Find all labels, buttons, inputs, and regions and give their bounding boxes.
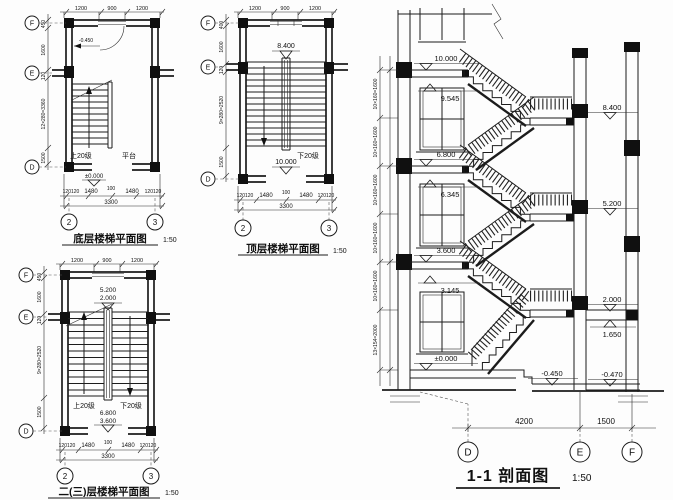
dim-label: 1500 [597,417,615,426]
level-label: 5.200 [603,199,622,208]
bottom-dimension-lines: 120120 1480 100 1480 120120 3300 [60,174,165,209]
axis-label: 2 [63,472,68,481]
axis-label: E [24,315,29,322]
zero-level-marker: ±0.000 [82,174,106,186]
landing-label: 平台 [122,151,136,160]
axis-label: D [205,177,210,184]
dim-label: 900 [280,6,289,12]
top-dimension-line: 1200 900 1200 [60,6,165,20]
level-label: 9.545 [441,94,460,103]
caption-scale: 1:50 [163,237,177,244]
dim-label: 10×160=1600 [373,222,379,253]
dim-label: 120120 [140,443,157,449]
axis-label: D [464,448,471,459]
lower-level-marker: 6.800 3.600 [94,410,122,432]
dim-total-label: 3300 [104,200,118,206]
axis-label: 2 [241,224,246,233]
axis-label: F [629,448,635,459]
floor-slabs [410,70,516,378]
dim-label: 1480 [259,193,273,199]
level-label: 10.000 [435,54,458,63]
top-floor-plan: 1200 900 1200 8.400 下20级 10.000 400 1600… [186,0,371,263]
stair-flights [460,49,572,374]
dim-label: 1480 [299,193,313,199]
dim-label: 1500 [37,406,43,417]
dim-label: 1600 [219,41,225,52]
left-dimension-chain: 450 1600 120 12×280=3360 1500 [41,14,51,170]
outdoor-level-marker: -0.450 [528,369,578,385]
dim-label: 100 [282,190,291,196]
dim-total-label: 3300 [101,454,115,460]
caption-scale: 1:50 [165,490,179,497]
level-label: ±0.000 [85,174,104,180]
dim-label: 120120 [63,189,80,195]
stair-direction-label: 上20级 [73,401,95,410]
dim-label: 10×160=1600 [373,270,379,301]
caption-text: 1-1 剖面图 [467,466,550,485]
dim-label: 10×160=1600 [373,174,379,205]
level-label: -0.450 [79,38,93,44]
axis-label: D [29,165,34,172]
plan-caption: 顶层楼梯平面图 1:50 [238,242,347,255]
level-label: 6.800 [100,410,117,417]
dim-label: 1480 [121,443,135,449]
level-label: -0.470 [601,370,622,379]
dim-label: 900 [102,258,111,264]
caption-scale: 1:50 [333,248,347,255]
dim-label: 450 [37,273,43,282]
floor-level-marker: 10.000 [272,159,300,174]
level-label: 8.400 [277,43,295,50]
dim-label: 1500 [219,156,225,167]
level-label: -0.450 [541,369,562,378]
dim-label: 1200 [249,6,261,12]
level-label: 10.000 [275,159,297,166]
level-label: 3.600 [100,418,117,425]
dim-label: 9×280=2520 [37,346,43,374]
caption-text: 顶层楼梯平面图 [246,242,320,255]
dim-label: 120120 [237,193,254,199]
level-label: ±0.000 [435,354,458,363]
axis-label: F [24,273,28,280]
dim-label: 10×160=1600 [373,78,379,109]
dim-label: 1200 [71,258,83,264]
stair-flight [246,58,326,150]
section-1-1: 10.000 9.545 6.800 6.345 3.600 3.145 ±0.… [368,0,673,500]
stair-flights [66,304,148,400]
caption-scale: 1:50 [572,473,592,484]
dim-label: 400 [219,21,225,30]
dim-label: 1480 [81,443,95,449]
dim-label: 1480 [125,189,139,195]
dim-label: 1200 [131,258,143,264]
level-label: 2.000 [100,295,117,302]
level-label: 6.345 [441,190,460,199]
section-caption: 1-1 剖面图 1:50 [456,466,592,488]
bottom-dimension-lines: 120120 1480 100 1480 120120 3300 [234,186,337,213]
level-label: 2.000 [603,295,622,304]
axis-label: E [577,448,584,459]
dim-label: 1500 [41,152,47,163]
axis-label: E [30,71,35,78]
left-dimension-chain: 10×160=1600 10×160=1600 10×160=1600 10×1… [373,56,398,386]
dim-label: 1200 [136,6,148,12]
level-label: 6.800 [437,150,456,159]
caption-text: 二(三)层楼梯平面图 [59,485,150,498]
stair-flight [72,80,112,148]
dim-label: 450 [41,20,47,29]
plan-caption: 二(三)层楼梯平面图 1:50 [48,485,179,498]
dim-total-label: 3300 [279,204,293,210]
half-landings [530,118,574,317]
entry-level: -0.450 [74,38,100,49]
dim-label: 900 [107,6,116,12]
upper-level-marker: 5.200 2.000 [94,287,122,310]
plan-caption: 底层楼梯平面图 1:50 [62,232,177,245]
axis-label: F [206,21,210,28]
axis-label: D [23,429,28,436]
top-dimension-line: 1200 900 1200 [56,258,159,272]
level-label: 5.200 [100,287,117,294]
left-dimension-chain: 450 1600 120 9×280=2520 1500 [37,266,47,434]
dim-label: 1600 [41,44,47,55]
left-dimension-chain: 400 1600 120 9×280=2520 1500 [219,14,229,182]
bottom-dimension-line: 4200 1500 [452,392,656,432]
axis-label: 3 [327,224,332,233]
dim-label: 4200 [515,417,533,426]
axis-label: 3 [153,218,158,227]
dim-label: 100 [104,440,113,446]
middle-floor-plan: 1200 900 1200 5.200 2.000 上20级 下20级 6.80… [12,252,202,500]
level-label: 3.145 [441,286,460,295]
drawing-sheet: 1200 900 1200 -0.450 上20级 平台 ±0.000 450 … [0,0,673,500]
top-dimension-line: 1200 900 1200 [234,6,337,20]
dim-label: 120120 [318,193,335,199]
dim-label: 1480 [84,189,98,195]
stair-direction-label: 上20级 [70,151,92,160]
stair-direction-label: 下20级 [297,151,319,160]
dim-label: 1200 [309,6,321,12]
axis-bubbles: D E F [420,392,642,462]
axis-label: 3 [149,472,154,481]
axis-label: 2 [67,218,72,227]
dim-label: 13×154=2000 [373,324,379,355]
level-label: 1.650 [603,330,622,339]
stair-direction-label: 下20级 [120,401,142,410]
level-label: 3.600 [437,246,456,255]
door-swing [100,26,124,50]
ground-floor-plan: 1200 900 1200 -0.450 上20级 平台 ±0.000 450 … [22,0,188,250]
dim-label: 9×280=2520 [219,96,225,124]
porch-wall-right [618,42,648,402]
dim-label: 10×160=1600 [373,126,379,157]
dim-label: 12×280=3360 [41,98,47,129]
bottom-dimension-lines: 120120 1480 100 1480 120120 3300 [56,438,159,463]
stairwell-wall-right [572,48,588,390]
dim-label: 120120 [59,443,76,449]
level-label: 8.400 [603,103,622,112]
level-markers-left: 10.000 9.545 6.800 6.345 3.600 3.145 ±0.… [414,54,480,370]
landing-level-marker: 8.400 [272,43,300,59]
entrance-canopy [586,310,638,320]
walls [52,18,174,172]
axis-label: E [206,65,211,72]
dim-label: 1200 [75,6,87,12]
caption-text: 底层楼梯平面图 [73,232,147,245]
axis-label: F [30,21,34,28]
dim-label: 100 [107,186,116,192]
dim-label: 120120 [145,189,162,195]
dim-label: 1600 [37,291,43,302]
